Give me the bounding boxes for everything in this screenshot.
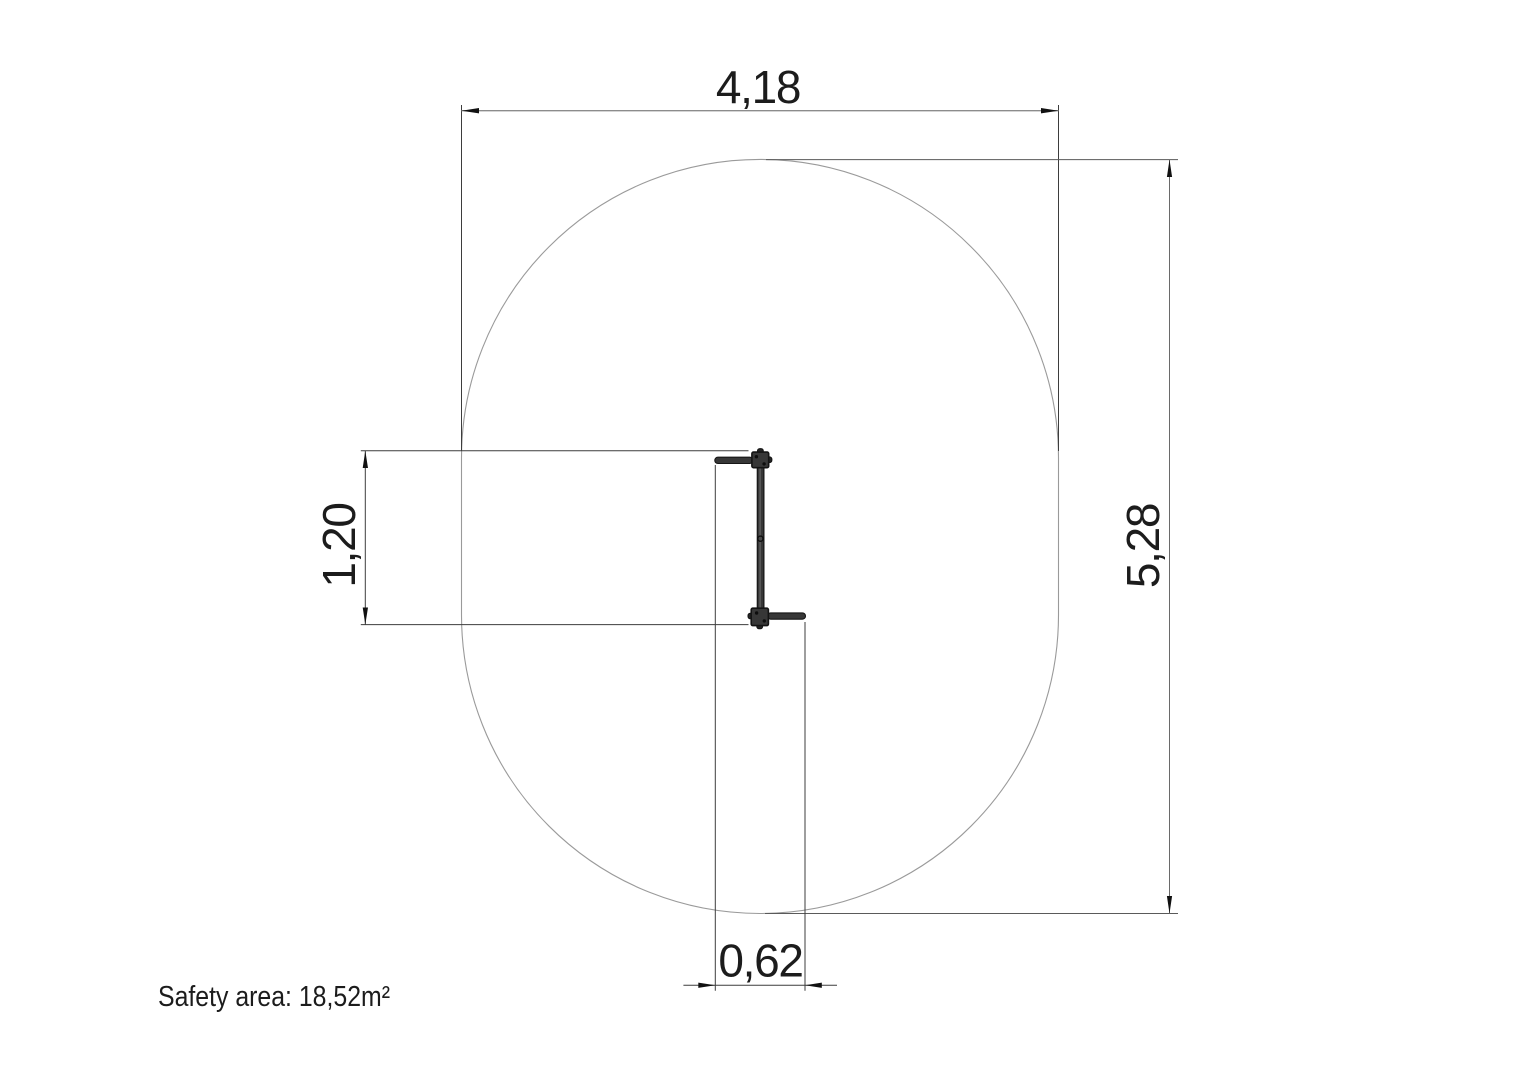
svg-text:4,18: 4,18 <box>716 61 800 113</box>
svg-text:1,20: 1,20 <box>313 503 365 587</box>
svg-text:5,28: 5,28 <box>1117 504 1169 588</box>
svg-text:Safety area: 18,52m²: Safety area: 18,52m² <box>158 981 390 1013</box>
svg-text:0,62: 0,62 <box>718 935 802 987</box>
